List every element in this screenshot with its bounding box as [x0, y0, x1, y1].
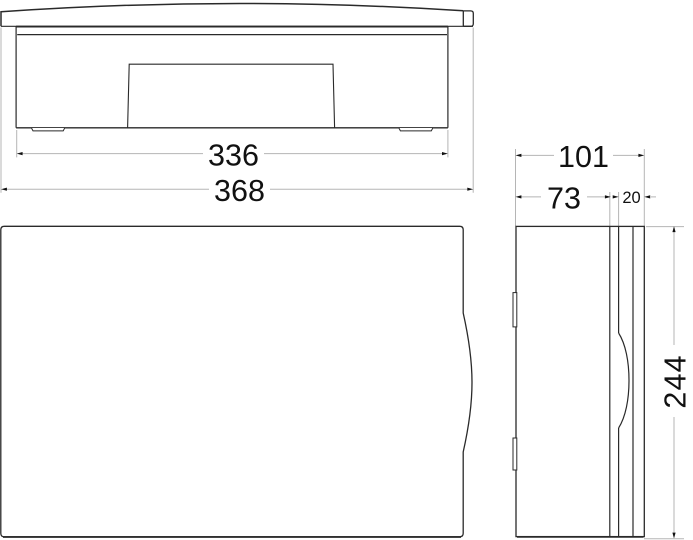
- svg-text:101: 101: [558, 140, 609, 174]
- svg-text:368: 368: [214, 174, 265, 208]
- svg-text:73: 73: [547, 182, 581, 216]
- svg-text:20: 20: [622, 189, 640, 207]
- svg-text:244: 244: [659, 354, 693, 408]
- svg-text:336: 336: [208, 139, 259, 173]
